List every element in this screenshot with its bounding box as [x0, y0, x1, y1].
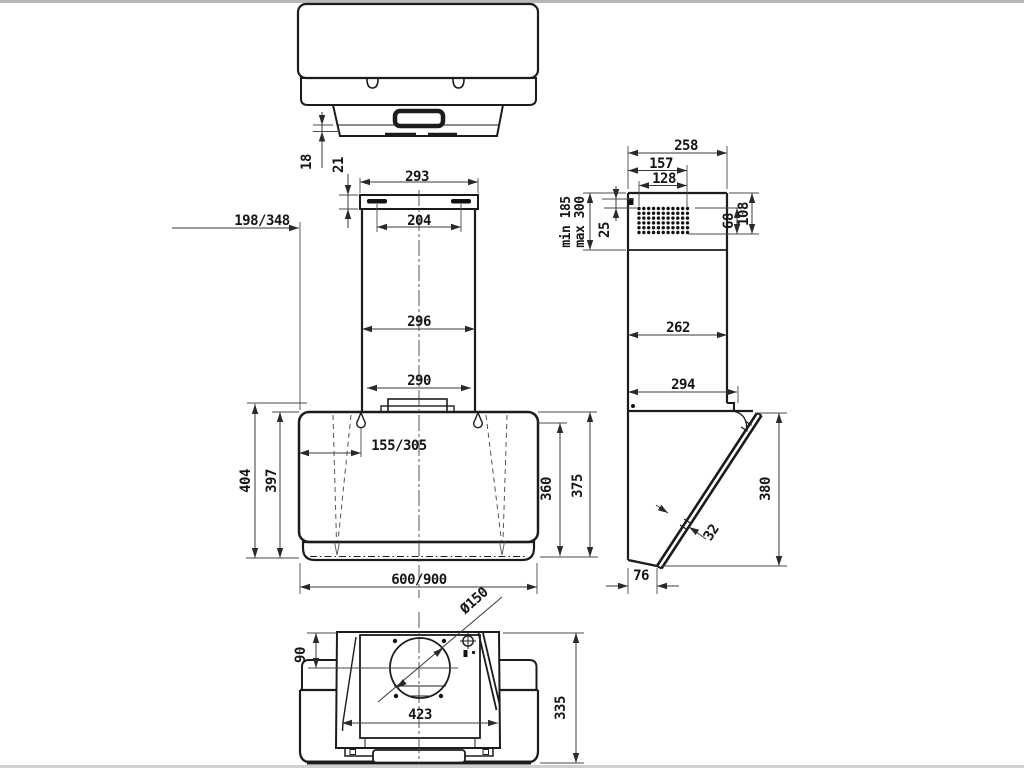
- dim-380: 380: [758, 477, 774, 501]
- dim-404: 404: [238, 469, 254, 493]
- bracket-slot: [451, 199, 471, 204]
- dim-258: 258: [674, 138, 698, 154]
- dim-262: 262: [666, 320, 690, 336]
- dim-335: 335: [553, 696, 569, 720]
- pivot-dot: [631, 404, 635, 408]
- dim-157: 157: [649, 156, 673, 172]
- dim-360: 360: [539, 477, 555, 501]
- dim-min-185: min 185: [559, 196, 574, 247]
- dim-397: 397: [264, 469, 280, 493]
- dim-294: 294: [671, 377, 695, 393]
- dim-155-305: 155/305: [371, 438, 427, 454]
- bracket-slot: [367, 199, 387, 204]
- dim-423: 423: [408, 707, 432, 723]
- top-edge-strip: [0, 0, 1024, 3]
- dim-25: 25: [597, 222, 613, 238]
- dim-198-348: 198/348: [234, 213, 290, 229]
- dim-128: 128: [652, 171, 676, 187]
- dim-600-900: 600/900: [391, 572, 447, 588]
- dim-204: 204: [407, 213, 431, 229]
- dim-375: 375: [570, 474, 586, 498]
- dim-68: 68: [721, 213, 737, 229]
- dim-293: 293: [405, 169, 429, 185]
- page-background: [0, 0, 1024, 768]
- dim-max-300: max 300: [573, 196, 588, 248]
- dim-296: 296: [407, 314, 431, 330]
- dim-76: 76: [633, 568, 649, 584]
- dim-108: 108: [736, 202, 752, 226]
- technical-drawing-canvas: 18 21 198/348 293 204 296 290 155/305 40…: [0, 0, 1024, 768]
- dim-290: 290: [407, 373, 431, 389]
- dim-18: 18: [299, 154, 315, 170]
- dim-21: 21: [331, 157, 347, 173]
- dim-90: 90: [293, 647, 309, 663]
